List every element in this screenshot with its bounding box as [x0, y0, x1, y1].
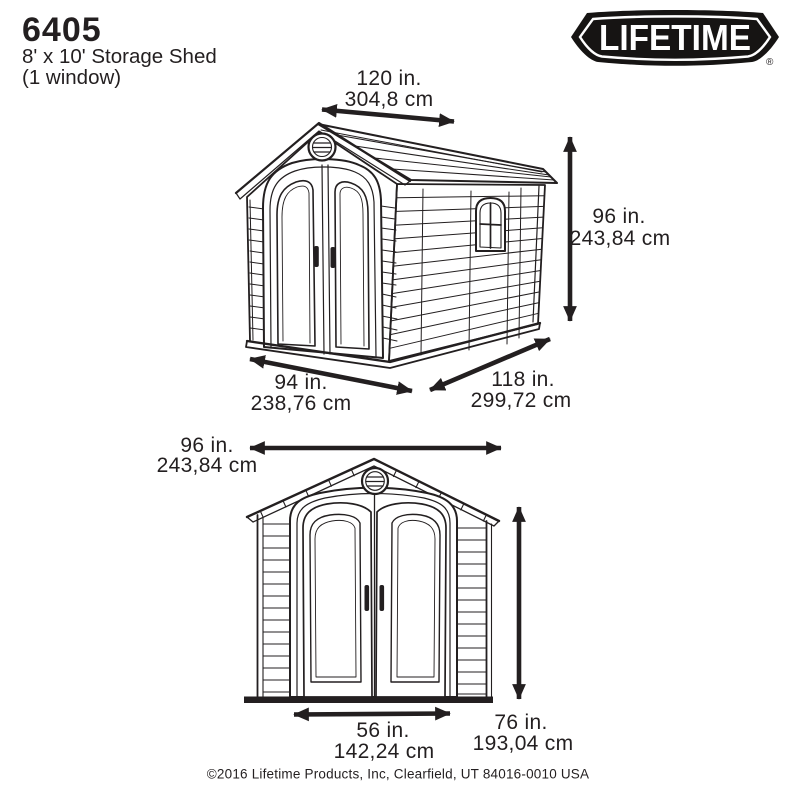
dim-front-width-cm: 238,76 cm — [251, 392, 352, 416]
side-window — [476, 198, 505, 251]
registered-trademark: ® — [766, 57, 773, 68]
footer-copyright: ©2016 Lifetime Products, Inc, Clearfield… — [207, 767, 589, 782]
elevation-double-doors — [290, 488, 457, 697]
dim-roof-width-cm: 304,8 cm — [345, 88, 434, 112]
left-siding-lines — [263, 524, 290, 692]
shed-dimension-diagram: 6405 8' x 10' Storage Shed (1 window) LI… — [0, 0, 800, 800]
left-door-handle-icon — [365, 585, 370, 611]
gable-vent-icon — [362, 468, 388, 494]
right-door-handle-icon — [380, 585, 385, 611]
brand-logo-text: LIFETIME — [599, 17, 751, 58]
left-door — [303, 503, 372, 697]
front-corner-trim — [250, 200, 253, 340]
dimension-arrow-door-width — [294, 714, 450, 715]
brand-logo: LIFETIME — [571, 10, 779, 66]
perspective-shed-drawing — [236, 123, 557, 368]
dim-height-inches: 96 in. — [592, 205, 645, 229]
diagram-canvas: LIFETIME — [0, 0, 800, 800]
dim-wall-height-cm: 193,04 cm — [473, 732, 574, 756]
dim-height-cm: 243,84 cm — [570, 227, 671, 251]
right-door — [376, 503, 446, 697]
left-door-handle-icon — [314, 246, 319, 267]
dim-overall-width-cm: 243,84 cm — [157, 454, 258, 478]
dim-depth-cm: 299,72 cm — [471, 389, 572, 413]
dim-door-width-cm: 142,24 cm — [334, 740, 435, 764]
right-door-handle-icon — [331, 247, 336, 268]
base-bar — [244, 697, 493, 704]
front-double-doors — [263, 159, 383, 358]
front-elevation-drawing — [244, 459, 499, 703]
right-siding-lines — [457, 528, 487, 694]
gable-vent-icon — [309, 134, 336, 161]
